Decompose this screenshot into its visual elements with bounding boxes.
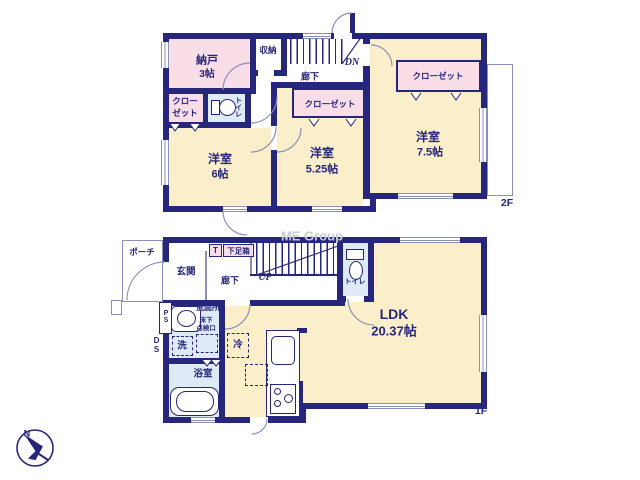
label-1f: 1F [475,406,487,417]
label-2f: 2F [501,198,513,209]
label-room6-size: 6帖 [211,170,228,181]
floor-plan: ME Group 納戸 3帖 収納 廊下 DN クロー ゼット トイレ クローゼ… [0,0,640,480]
watermark: ME Group [281,229,343,244]
label-room525: 洋室 [310,147,334,159]
label-nando: 納戸 [196,56,218,67]
label-closet-left-1: クロー [172,97,198,106]
label-ldk: LDK [380,307,409,321]
label-washer: 洗 [177,341,187,351]
label-senmenjo: 洗面所 [196,304,220,312]
label-yukashita-1: 床下 [200,318,213,325]
label-shoe-box: 下足箱 [227,247,250,255]
label-toilet-2f: トイレ [235,97,242,118]
label-room75-size: 7.5帖 [417,148,443,159]
label-genkan: 玄関 [176,267,195,277]
label-shoe-t: T [213,247,218,255]
label-ldk-size: 20.37帖 [371,325,417,338]
label-yukashita-2: 点検口 [196,326,216,333]
label-room6: 洋室 [208,153,232,165]
label-roka-2f: 廊下 [301,73,319,82]
label-ds: DS [152,336,160,354]
label-nando-size: 3帖 [199,70,215,80]
label-closet-mid: クローゼット [304,100,355,109]
compass-icon [17,430,53,466]
label-dn: DN [345,58,359,68]
label-closet-left-2: ゼット [172,109,198,118]
label-closet-right: クローゼット [412,72,463,81]
label-up: UP [258,273,271,283]
label-shuno: 収納 [259,46,276,55]
label-room525-size: 5.25帖 [306,165,338,176]
label-room75: 洋室 [416,131,440,143]
label-fridge: 冷 [233,340,243,350]
label-porch: ポーチ [129,248,155,257]
label-ps: PS [163,310,170,324]
label-roka-1f: 廊下 [221,277,239,286]
label-toilet-1f: トイレ [345,279,366,286]
label-bath: 浴室 [193,369,212,379]
compass-north-label: N [24,430,31,439]
